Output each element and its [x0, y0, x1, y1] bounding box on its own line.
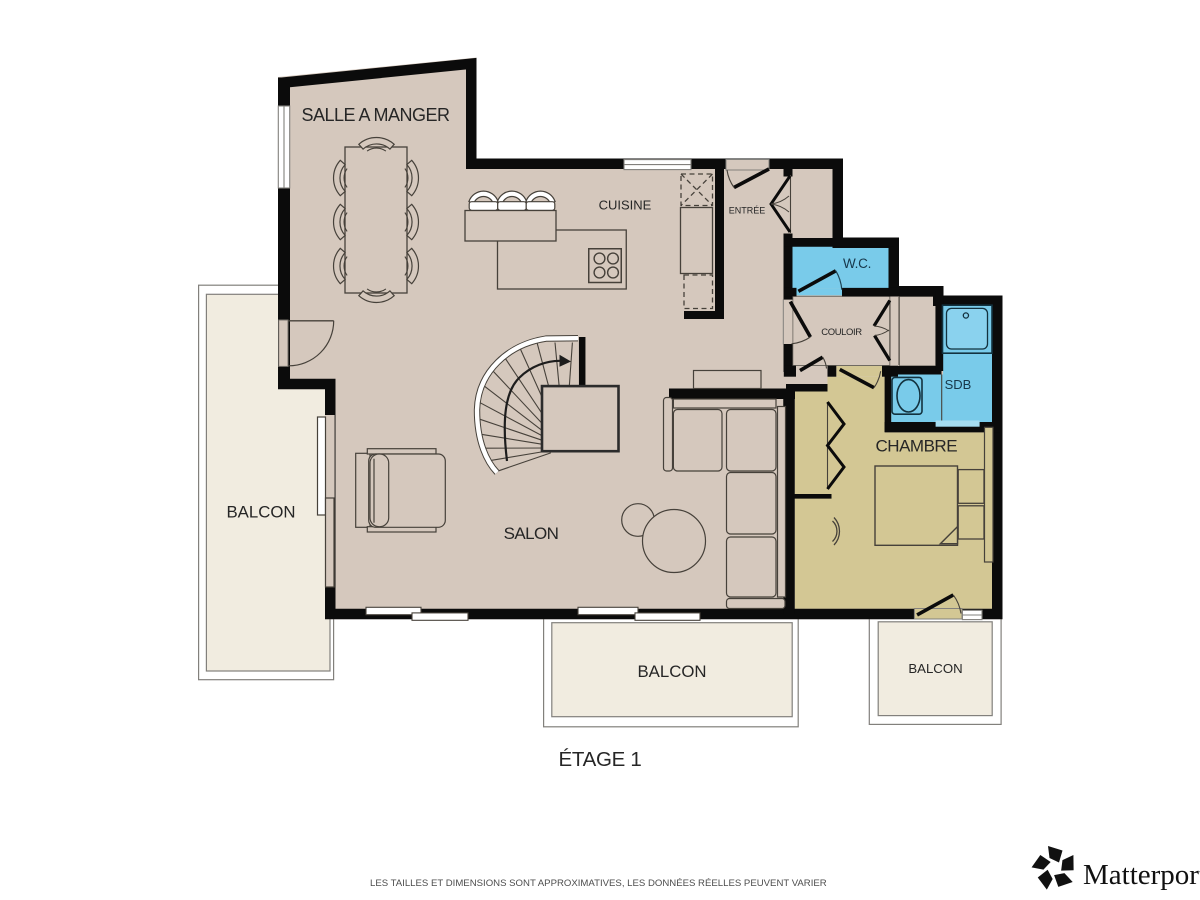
svg-text:BALCON: BALCON — [226, 503, 295, 522]
svg-text:ENTRÉE: ENTRÉE — [729, 206, 766, 216]
svg-text:LES TAILLES ET DIMENSIONS SONT: LES TAILLES ET DIMENSIONS SONT APPROXIMA… — [370, 878, 827, 889]
svg-text:SDB: SDB — [945, 377, 972, 392]
svg-text:Matterport: Matterport — [1083, 859, 1200, 891]
svg-text:W.C.: W.C. — [843, 256, 871, 271]
svg-text:BALCON: BALCON — [908, 661, 962, 676]
svg-text:BALCON: BALCON — [637, 662, 706, 681]
svg-text:ÉTAGE 1: ÉTAGE 1 — [559, 748, 642, 771]
svg-text:SALON: SALON — [504, 524, 559, 543]
svg-text:SALLE A MANGER: SALLE A MANGER — [301, 105, 450, 125]
svg-text:CUISINE: CUISINE — [599, 198, 652, 213]
svg-text:CHAMBRE: CHAMBRE — [876, 437, 958, 456]
svg-text:COULOIR: COULOIR — [821, 327, 862, 338]
